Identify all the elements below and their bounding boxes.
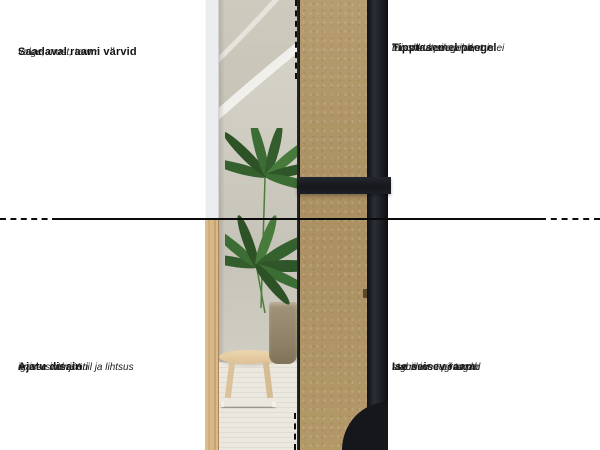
black-frame-edge: [367, 0, 388, 450]
annotation-desc-line: stabiilsuse põrandal: [392, 361, 480, 375]
product-infographic: Saadaval raami värvid valge, must, tamm …: [0, 0, 600, 450]
palm-plant: [225, 128, 297, 353]
annotation-desc-line: valge, must, tamm: [18, 46, 100, 60]
annotation-desc-line: moonuta peegeldust: [392, 42, 483, 56]
mirror-frame-oak-edge: [205, 220, 219, 450]
divider-vertical-dashed-top: [295, 0, 297, 79]
divider-horizontal-dashed-right: [540, 218, 600, 220]
divider-horizontal-solid: [57, 218, 541, 220]
support-bracket: [297, 177, 391, 194]
lifestyle-photo: [205, 0, 297, 450]
mirror-frame-white-edge: [205, 0, 219, 220]
mirror-back-photo: [297, 0, 388, 450]
mdf-back-panel: [300, 0, 367, 450]
divider-vertical-dashed-bottom: [294, 413, 296, 450]
book-stack: [221, 402, 277, 442]
divider-horizontal-dashed-left: [0, 218, 58, 220]
annotation-desc-line: igasse interjööri: [18, 361, 88, 375]
arch-reflection: [219, 0, 297, 130]
